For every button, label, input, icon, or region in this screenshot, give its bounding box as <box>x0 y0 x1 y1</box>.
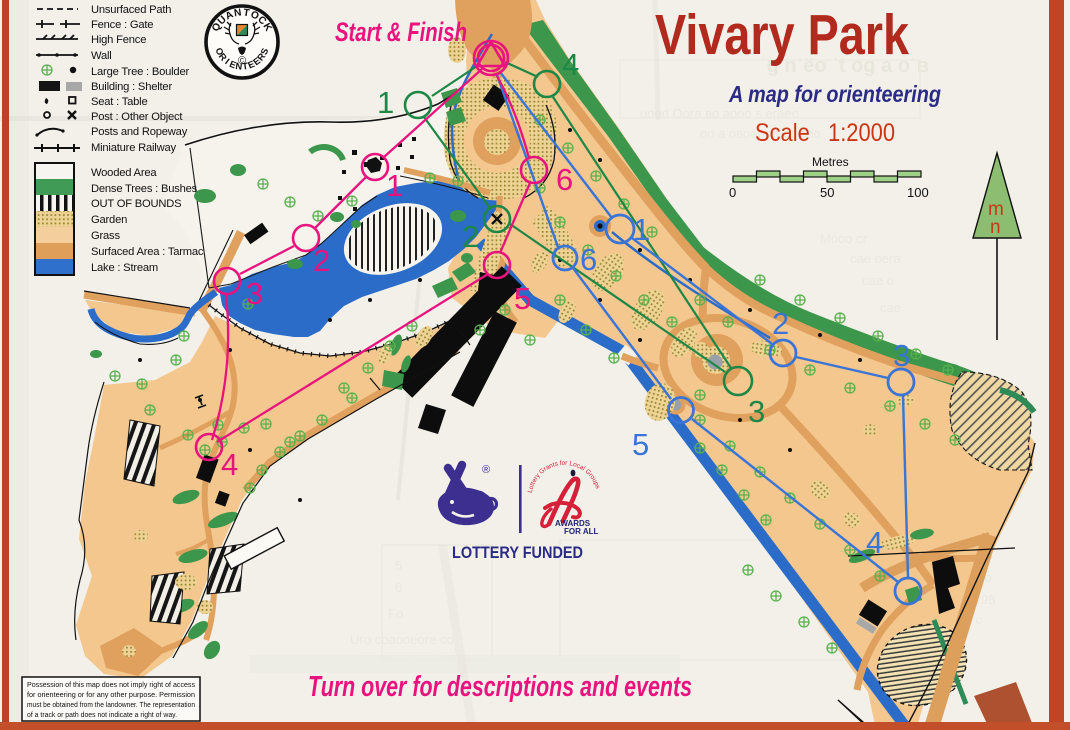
svg-text:Start & Finish: Start & Finish <box>335 17 467 47</box>
svg-text:Possession of this map doe: Possession of this map does not imply ri… <box>27 680 195 689</box>
svg-text:4: 4 <box>562 47 579 82</box>
svg-text:LOTTERY FUNDED: LOTTERY FUNDED <box>452 543 583 562</box>
svg-text:4: 4 <box>221 447 238 482</box>
svg-text:4: 4 <box>866 525 883 560</box>
svg-text:must be obtained from the land: must be obtained from the landowner. The… <box>27 700 195 709</box>
svg-text:Uго соаооеоге со: Uго соаооеоге со <box>350 632 454 647</box>
svg-text:Wooded Area: Wooded Area <box>91 167 157 179</box>
svg-text:Grass: Grass <box>91 230 120 242</box>
svg-text:3: 3 <box>246 276 263 311</box>
svg-text:сае: сае <box>880 300 901 315</box>
svg-text:0: 0 <box>729 185 736 200</box>
svg-text:3: 3 <box>893 338 910 373</box>
svg-text:FOR ALL: FOR ALL <box>564 527 598 536</box>
svg-text:Lake : Stream: Lake : Stream <box>91 262 158 274</box>
svg-text:©: © <box>238 55 246 67</box>
svg-text:A map for orienteering: A map for orienteering <box>728 81 941 107</box>
svg-text:сае оега: сае оега <box>850 251 901 266</box>
svg-text:Vivary Park: Vivary Park <box>655 3 909 67</box>
svg-text:Surfaced Area : Tarmac: Surfaced Area : Tarmac <box>91 246 204 258</box>
svg-text:Unsurfaced Path: Unsurfaced Path <box>91 4 171 16</box>
svg-text:2: 2 <box>462 219 479 254</box>
svg-text:OUT OF BOUNDS: OUT OF BOUNDS <box>91 198 181 210</box>
svg-text:2: 2 <box>313 243 330 278</box>
svg-text:6: 6 <box>556 162 573 197</box>
svg-text:100: 100 <box>907 185 929 200</box>
svg-text:Post : Other Object: Post : Other Object <box>91 111 183 123</box>
svg-text:for orienteering or for an: for orienteering or for any other purpos… <box>27 690 195 699</box>
svg-text:Large Tree : Boulder: Large Tree : Boulder <box>91 66 189 78</box>
svg-text:®: ® <box>482 464 490 476</box>
svg-text:6: 6 <box>580 242 597 277</box>
svg-text:1: 1 <box>377 85 394 120</box>
svg-text:Fence : Gate: Fence : Gate <box>91 19 153 31</box>
svg-text:Fо: Fо <box>388 606 403 621</box>
svg-text:of a track or path does not in: of a track or path does not indicate a r… <box>27 710 177 719</box>
svg-text:50: 50 <box>820 185 834 200</box>
svg-text:Turn over for descriptions and: Turn over for descriptions and events <box>308 671 692 703</box>
svg-text:Seat : Table: Seat : Table <box>91 96 147 108</box>
svg-text:1: 1 <box>386 168 403 203</box>
svg-text:n: n <box>990 217 1001 238</box>
svg-text:High Fence: High Fence <box>91 34 146 46</box>
svg-text:5: 5 <box>395 558 402 573</box>
svg-text:5: 5 <box>632 427 649 462</box>
svg-text:Scale 1:2000: Scale 1:2000 <box>755 119 895 147</box>
svg-text:Building : Shelter: Building : Shelter <box>91 81 172 93</box>
svg-text:Posts and Ropeway: Posts and Ropeway <box>91 126 188 138</box>
svg-text:Wall: Wall <box>91 50 112 62</box>
svg-text:Mооо сг: Mооо сг <box>820 231 868 246</box>
svg-text:Metres: Metres <box>812 155 849 169</box>
svg-text:3: 3 <box>748 394 765 429</box>
svg-text:сае о: сае о <box>862 273 894 288</box>
svg-text:1: 1 <box>633 212 650 247</box>
svg-text:6: 6 <box>395 580 402 595</box>
svg-text:5: 5 <box>514 281 531 316</box>
svg-text:Garden: Garden <box>91 214 127 226</box>
svg-text:Miniature Railway: Miniature Railway <box>91 142 176 154</box>
svg-text:2: 2 <box>772 306 789 341</box>
svg-text:Dense Trees : Bushes: Dense Trees : Bushes <box>91 183 198 195</box>
